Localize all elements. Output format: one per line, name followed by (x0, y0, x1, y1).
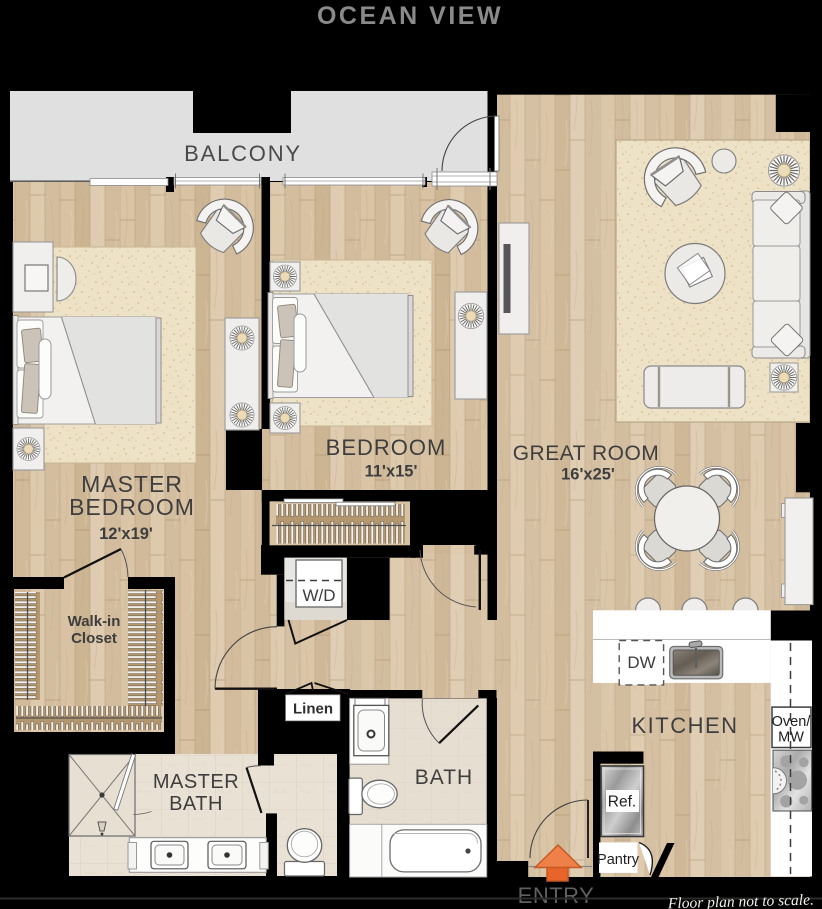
svg-text:Pantry: Pantry (597, 852, 640, 868)
svg-text:OCEAN VIEW: OCEAN VIEW (317, 2, 503, 30)
svg-text:ENTRY: ENTRY (518, 883, 595, 908)
svg-text:MASTER: MASTER (153, 771, 239, 793)
svg-text:Ref.: Ref. (608, 794, 636, 811)
svg-text:Oven/: Oven/ (772, 714, 812, 730)
svg-text:BATH: BATH (169, 793, 223, 815)
svg-text:KITCHEN: KITCHEN (631, 713, 738, 738)
svg-text:11'x15': 11'x15' (365, 463, 418, 481)
svg-text:BATH: BATH (415, 766, 473, 789)
svg-text:GREAT ROOM: GREAT ROOM (513, 442, 660, 465)
svg-text:12'x19': 12'x19' (99, 525, 153, 543)
svg-text:Walk-in: Walk-in (68, 613, 121, 630)
svg-text:Closet: Closet (71, 630, 117, 647)
svg-text:BALCONY: BALCONY (184, 141, 302, 166)
svg-text:Floor plan not to scale.: Floor plan not to scale. (667, 892, 814, 909)
svg-text:BEDROOM: BEDROOM (69, 494, 195, 520)
svg-text:DW: DW (627, 653, 655, 672)
svg-text:16'x25': 16'x25' (561, 466, 615, 484)
svg-text:Linen: Linen (293, 701, 333, 718)
svg-text:W/D: W/D (302, 586, 335, 605)
svg-text:BEDROOM: BEDROOM (326, 435, 447, 460)
